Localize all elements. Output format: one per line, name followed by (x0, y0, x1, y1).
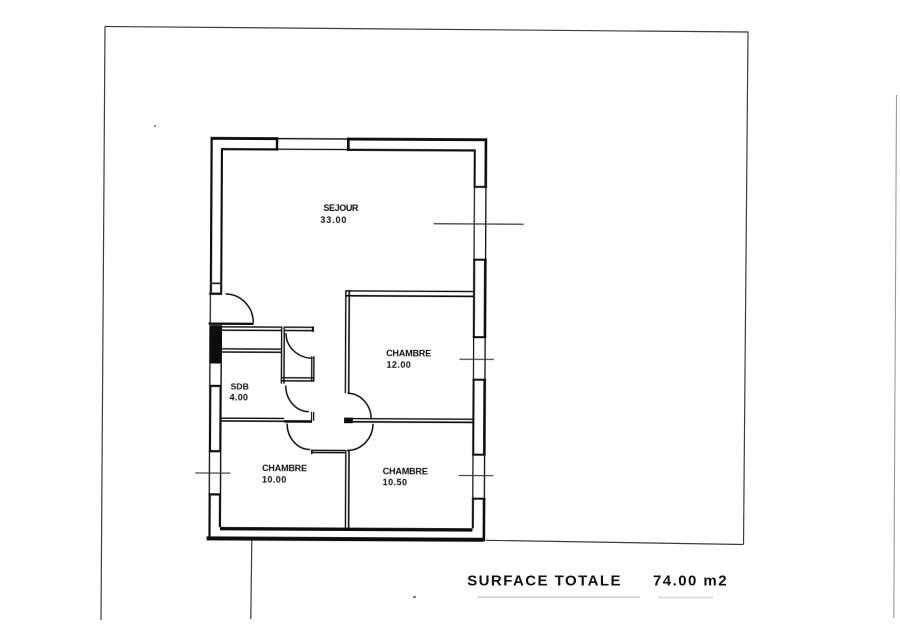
svg-text:SURFACE TOTALE: SURFACE TOTALE (467, 572, 622, 589)
svg-text:SDB: SDB (231, 381, 249, 391)
svg-text:4.00: 4.00 (230, 392, 249, 402)
svg-text:10.00: 10.00 (262, 475, 287, 485)
svg-text:CHAMBRE: CHAMBRE (262, 463, 307, 473)
svg-text:12.00: 12.00 (386, 360, 411, 370)
svg-text:CHAMBRE: CHAMBRE (386, 348, 431, 358)
svg-text:SEJOUR: SEJOUR (323, 203, 359, 213)
svg-text:33.00: 33.00 (320, 215, 347, 225)
svg-text:74.00 m2: 74.00 m2 (653, 573, 728, 590)
svg-text:CHAMBRE: CHAMBRE (383, 466, 428, 476)
svg-text:10.50: 10.50 (383, 477, 408, 487)
